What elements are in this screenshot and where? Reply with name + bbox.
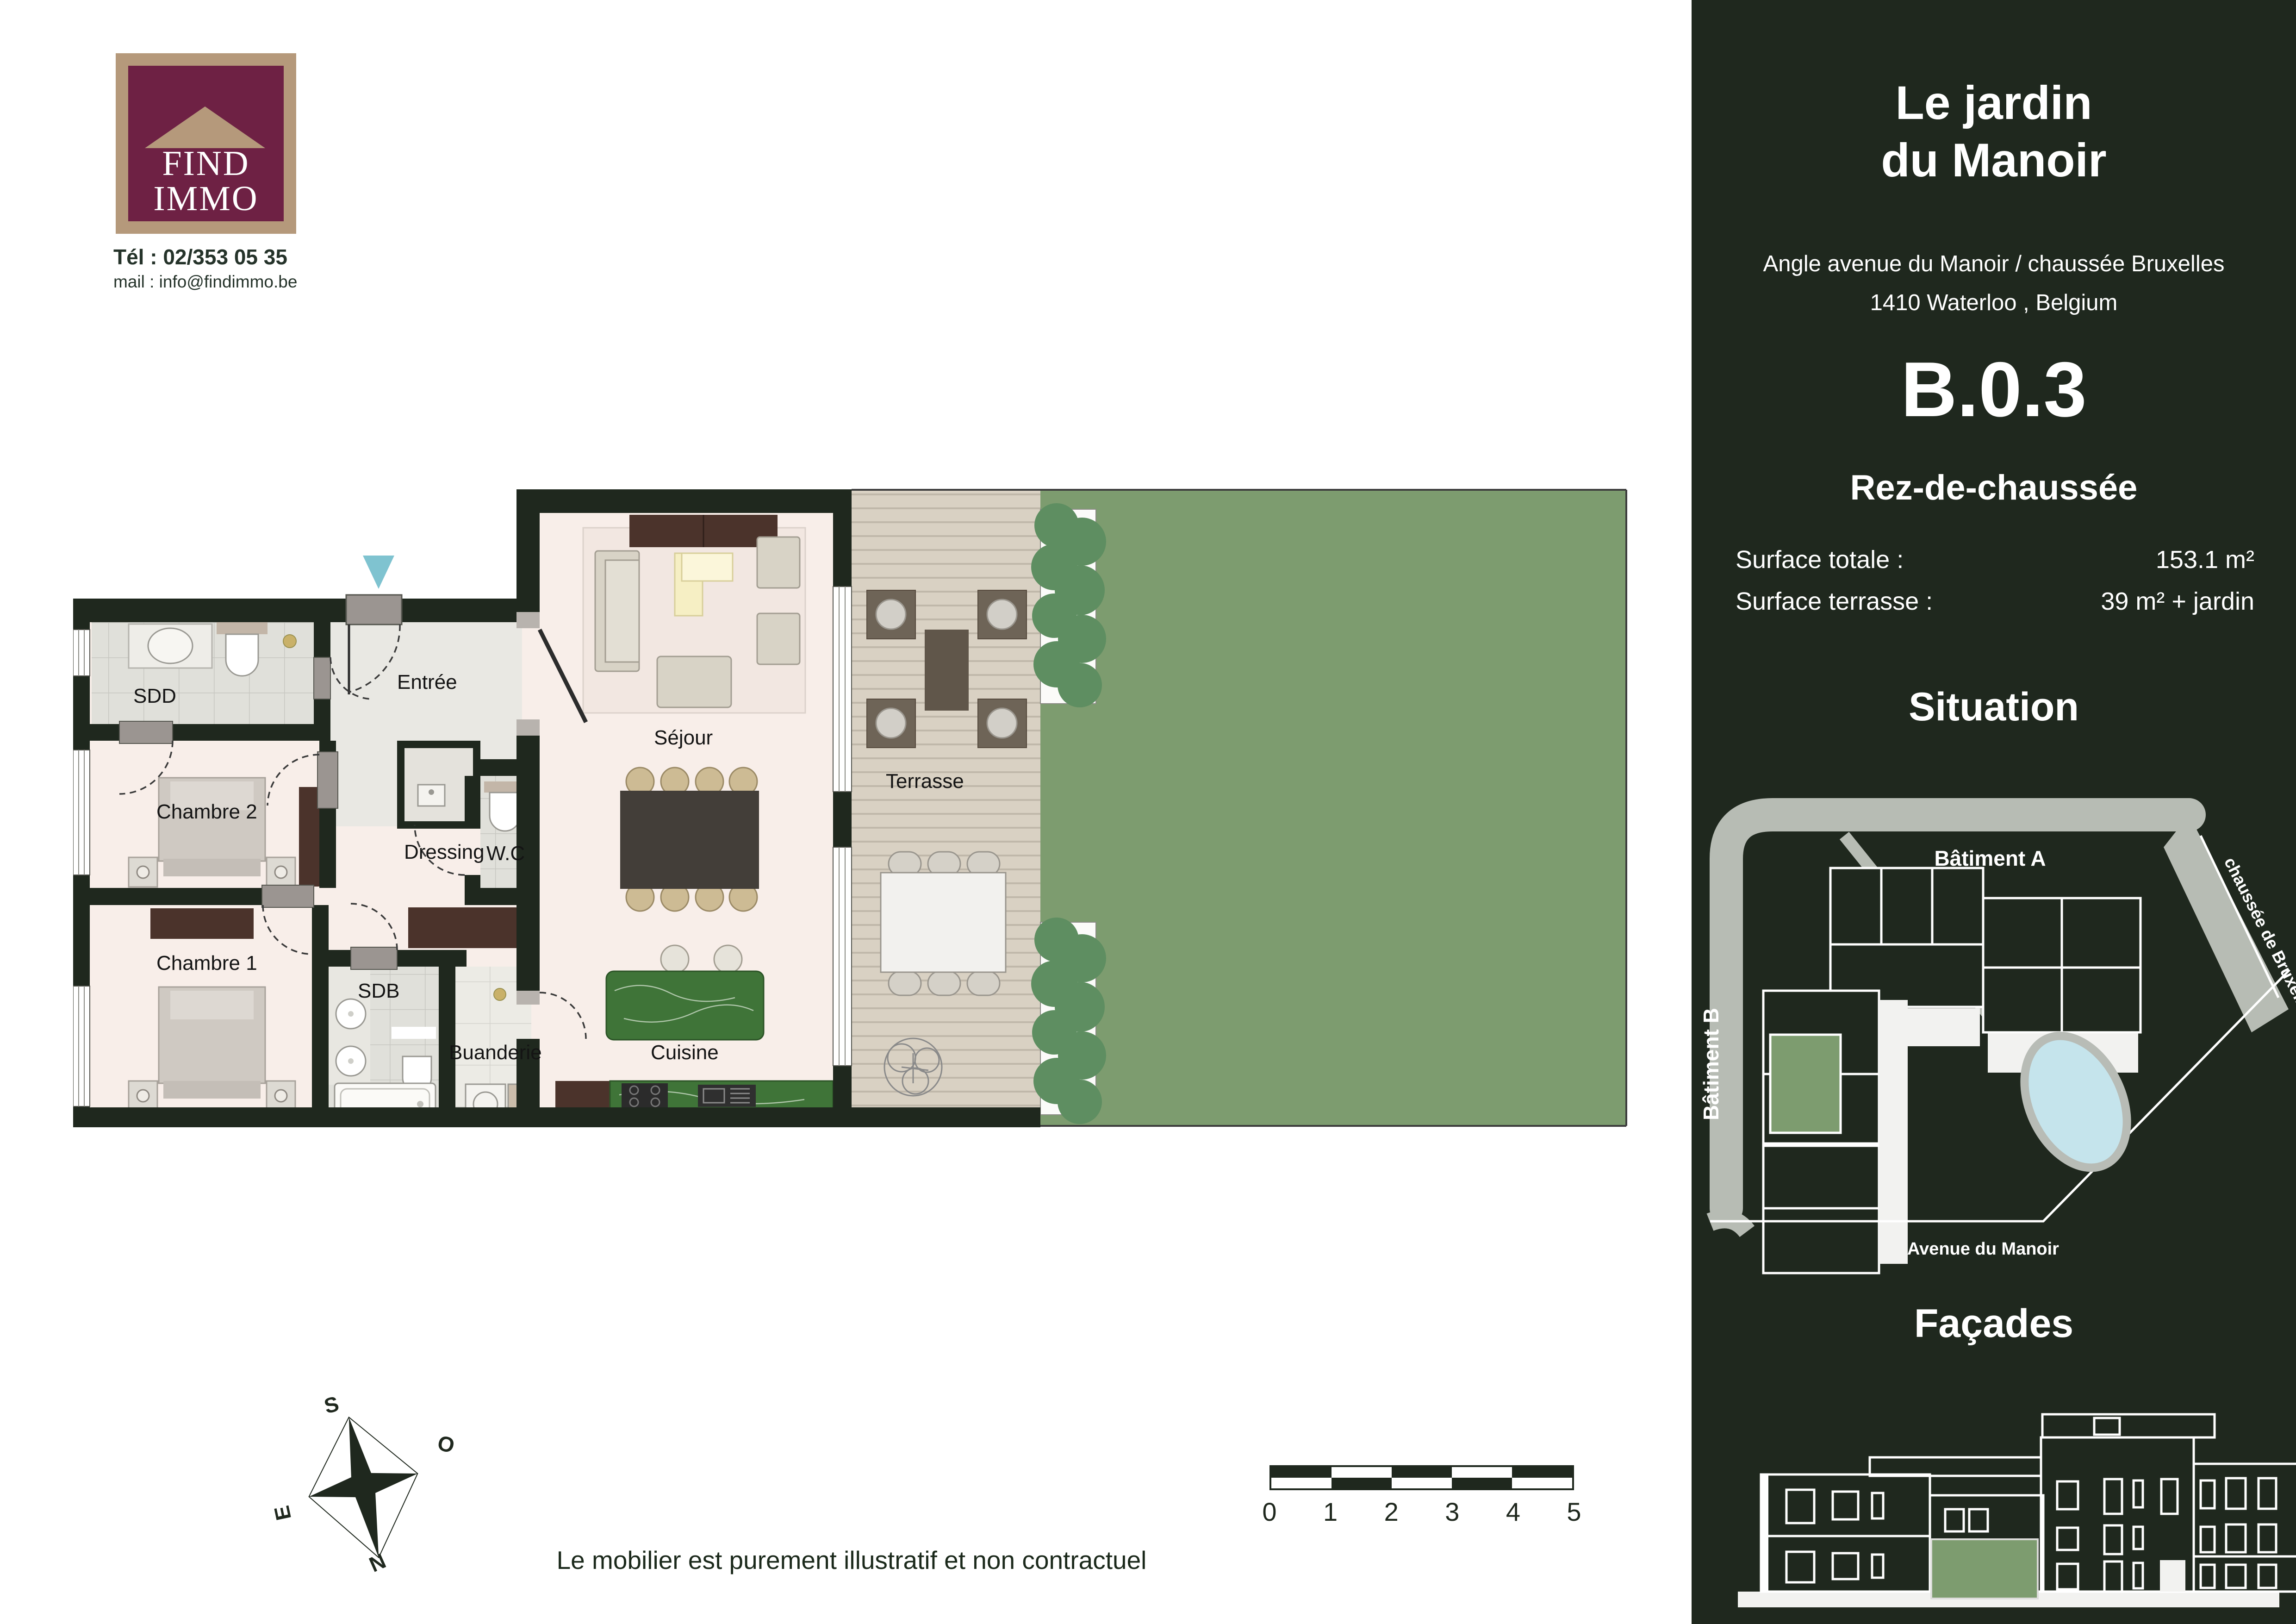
room-label-dressing: Dressing [404, 841, 485, 863]
situation-map: Bâtiment A Bâtiment B chaussée de Bruxel… [1692, 750, 2296, 1296]
dresser-chambre1 [150, 908, 254, 939]
surface-total-label: Surface totale : [1736, 545, 1904, 574]
surface-total-row: Surface totale : 153.1 m² [1736, 545, 2254, 574]
scale-bar: 0 1 2 3 4 5 [1269, 1465, 1574, 1534]
floor-name: Rez-de-chaussée [1692, 468, 2296, 508]
address-line2: 1410 Waterloo , Belgium [1692, 283, 2296, 322]
terrace-deck [852, 490, 1040, 1126]
surface-total-value: 153.1 m² [2156, 545, 2254, 574]
project-title-line1: Le jardin [1692, 74, 2296, 131]
compass-rose-icon: S O E N [259, 1366, 467, 1588]
loveseat [657, 656, 731, 707]
batiment-b-label: Bâtiment B [1699, 1008, 1723, 1120]
wardrobe-chambre2 [299, 787, 319, 887]
room-label-chambre2: Chambre 2 [156, 800, 257, 823]
surface-terrace-row: Surface terrasse : 39 m² + jardin [1736, 587, 2254, 616]
agency-logo-field: FIND IMMO [128, 66, 284, 221]
hedge-planter-bottom [1031, 918, 1106, 1124]
agency-phone: Tél : 02/353 05 35 [113, 244, 287, 269]
facades-drawing [1692, 1343, 2296, 1620]
surface-terrace-value: 39 m² + jardin [2101, 587, 2254, 616]
situation-title: Situation [1692, 684, 2296, 730]
scale-2: 2 [1384, 1497, 1399, 1527]
compass-o: O [435, 1430, 457, 1458]
roof-icon [145, 106, 265, 148]
garden [1040, 490, 1626, 1126]
scale-1: 1 [1323, 1497, 1338, 1527]
compass-s: S [322, 1392, 341, 1418]
disclaimer: Le mobilier est purement illustratif et … [500, 1545, 1203, 1575]
room-label-entree: Entrée [397, 671, 457, 693]
facades-title: Façades [1692, 1301, 2296, 1347]
wardrobe-dressing [408, 907, 522, 948]
scale-5: 5 [1567, 1497, 1581, 1527]
room-label-terrasse: Terrasse [886, 770, 964, 793]
room-label-buanderie: Buanderie [449, 1041, 542, 1064]
scale-0: 0 [1262, 1497, 1276, 1527]
logo-word-immo: IMMO [128, 179, 284, 219]
logo-word-find: FIND [128, 144, 284, 184]
batiment-b-footprint [1763, 991, 1908, 1273]
tv-cabinet [629, 515, 778, 547]
sofa [595, 551, 639, 671]
compass-n: N [366, 1549, 390, 1577]
terrace-dining [881, 852, 1006, 995]
room-label-wc: W.C [486, 842, 525, 865]
compass-e: E [269, 1504, 296, 1523]
address-line1: Angle avenue du Manoir / chaussée Bruxel… [1692, 244, 2296, 283]
avenue-label: Avenue du Manoir [1907, 1239, 2059, 1259]
unit-highlight [1770, 1035, 1841, 1133]
scale-3: 3 [1445, 1497, 1459, 1527]
sidebar: Le jardin du Manoir Angle avenue du Mano… [1692, 0, 2296, 1624]
agency-email: mail : info@findimmo.be [113, 272, 297, 292]
room-label-sejour: Séjour [654, 726, 713, 749]
room-label-sdd: SDD [133, 685, 176, 707]
surface-terrace-label: Surface terrasse : [1736, 587, 1933, 616]
project-address: Angle avenue du Manoir / chaussée Bruxel… [1692, 244, 2296, 323]
batiment-a-label: Bâtiment A [1934, 846, 2046, 870]
project-title: Le jardin du Manoir [1692, 74, 2296, 189]
scale-4: 4 [1506, 1497, 1520, 1527]
floorplan: SDD Entrée Chambre 2 W.C Dressing Chambr… [73, 481, 1628, 1130]
room-label-sdb: SDB [358, 980, 399, 1002]
plan-sheet: FIND IMMO Tél : 02/353 05 35 mail : info… [0, 0, 2296, 1624]
hedge-planter-top [1031, 503, 1106, 707]
kitchen-counter [555, 1081, 833, 1110]
room-label-chambre1: Chambre 1 [156, 952, 257, 974]
unit-number: B.0.3 [1692, 345, 2296, 434]
room-label-cuisine: Cuisine [651, 1041, 719, 1064]
agency-logo: FIND IMMO [116, 53, 296, 234]
project-title-line2: du Manoir [1692, 131, 2296, 189]
